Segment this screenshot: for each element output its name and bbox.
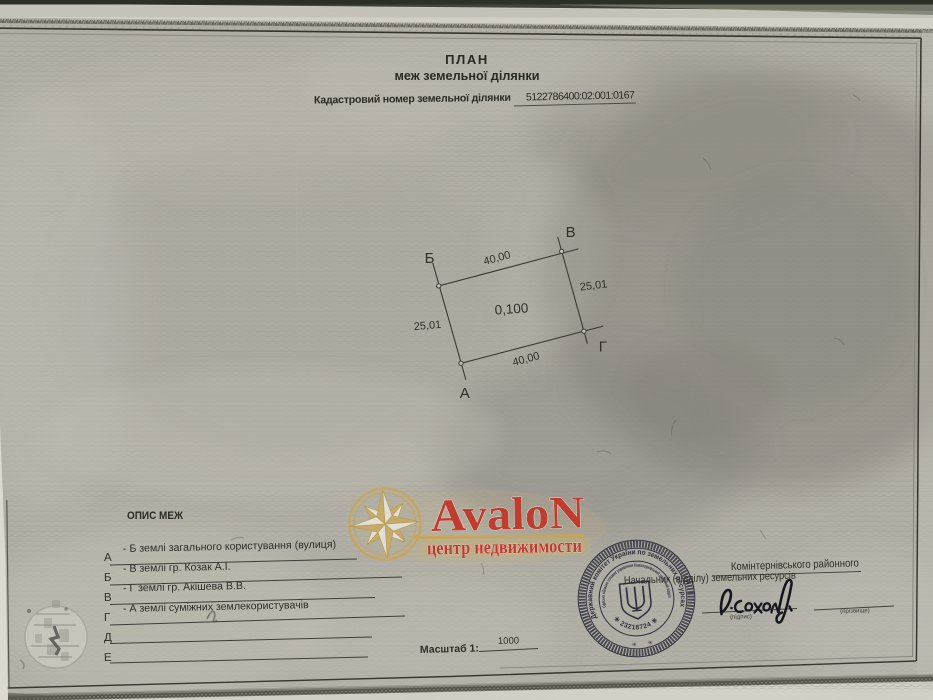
svg-text:ОПИС МЕЖ: ОПИС МЕЖ (127, 510, 183, 522)
svg-text:0,100: 0,100 (494, 300, 529, 317)
svg-text:✳: ✳ (647, 640, 653, 647)
svg-text:1000: 1000 (498, 635, 519, 647)
svg-text:Г: Г (599, 339, 607, 356)
svg-text:(прізвище): (прізвище) (840, 608, 870, 615)
svg-text:Масштаб 1:: Масштаб 1: (420, 642, 479, 656)
svg-text:AvaloN: AvaloN (430, 487, 585, 541)
svg-text:В: В (104, 592, 112, 604)
svg-text:центр недвижимости: центр недвижимости (427, 536, 582, 560)
svg-text:✳: ✳ (631, 641, 637, 648)
svg-text:В: В (566, 224, 576, 241)
svg-text:Д: Д (104, 632, 112, 644)
svg-text:Б: Б (104, 572, 112, 584)
svg-text:Г: Г (104, 612, 111, 624)
svg-text:ПЛАН: ПЛАН (445, 52, 489, 67)
svg-text:25,01: 25,01 (413, 319, 441, 333)
svg-text:(підпис): (підпис) (730, 614, 752, 621)
svg-text:А: А (104, 552, 112, 564)
svg-text:Б: Б (425, 250, 435, 267)
svg-text:Е: Е (104, 652, 112, 664)
svg-text:5122786400:02:001:0167: 5122786400:02:001:0167 (526, 89, 635, 103)
svg-text:А: А (460, 385, 470, 402)
svg-text:меж земельної ділянки: меж земельної ділянки (395, 69, 540, 83)
